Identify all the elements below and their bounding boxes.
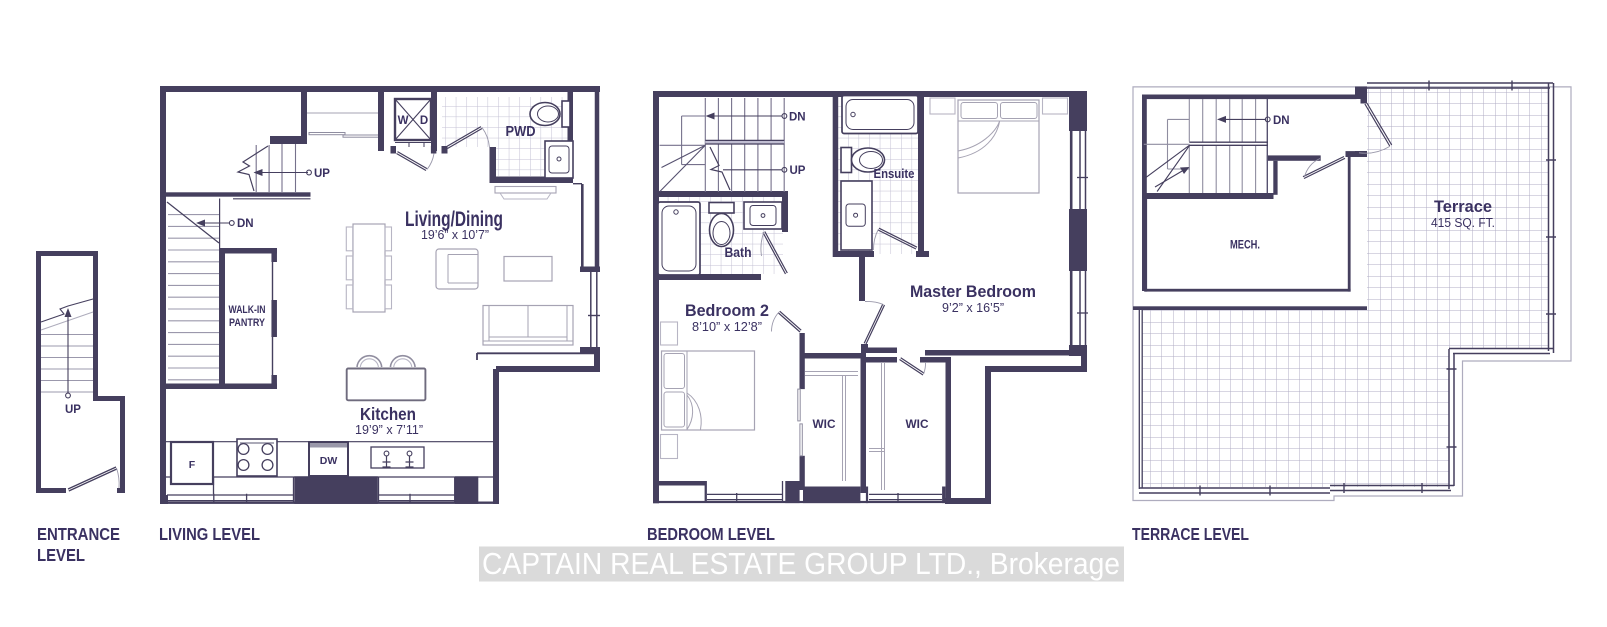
svg-text:WIC: WIC [906,419,929,431]
svg-text:ENTRANCE: ENTRANCE [37,524,120,544]
svg-text:TERRACE LEVEL: TERRACE LEVEL [1132,524,1249,544]
svg-text:WALK-IN: WALK-IN [229,304,266,316]
svg-text:MECH.: MECH. [1230,238,1260,252]
svg-text:DN: DN [1273,115,1290,127]
svg-text:W: W [398,115,409,127]
svg-text:F: F [189,459,196,471]
svg-text:Ensuite: Ensuite [874,166,915,181]
svg-text:UP: UP [65,404,81,416]
svg-text:LIVING LEVEL: LIVING LEVEL [159,524,260,544]
svg-text:415 SQ. FT.: 415 SQ. FT. [1431,215,1495,230]
svg-text:DW: DW [320,455,338,467]
svg-text:CAPTAIN REAL ESTATE GROUP LTD.: CAPTAIN REAL ESTATE GROUP LTD., Brokerag… [482,546,1120,581]
svg-text:WIC: WIC [813,419,836,431]
svg-text:Bath: Bath [725,245,752,260]
svg-text:DN: DN [237,218,254,230]
svg-text:9’2” x 16’5”: 9’2” x 16’5” [942,300,1004,315]
svg-text:19’6” x 10’7”: 19’6” x 10’7” [421,227,489,242]
svg-text:Bedroom 2: Bedroom 2 [685,301,769,320]
svg-text:DN: DN [789,112,806,124]
svg-text:Kitchen: Kitchen [360,404,416,424]
svg-text:8’10” x 12’8”: 8’10” x 12’8” [692,319,762,334]
svg-text:PWD: PWD [506,124,536,140]
svg-text:UP: UP [314,168,330,180]
svg-text:PANTRY: PANTRY [229,317,266,329]
svg-text:Master Bedroom: Master Bedroom [910,282,1036,301]
svg-text:Terrace: Terrace [1434,197,1492,216]
svg-text:D: D [420,115,428,127]
svg-text:UP: UP [790,165,806,177]
svg-text:19’9” x 7’11”: 19’9” x 7’11” [355,422,423,437]
svg-text:BEDROOM LEVEL: BEDROOM LEVEL [647,524,775,544]
svg-text:LEVEL: LEVEL [37,545,85,565]
